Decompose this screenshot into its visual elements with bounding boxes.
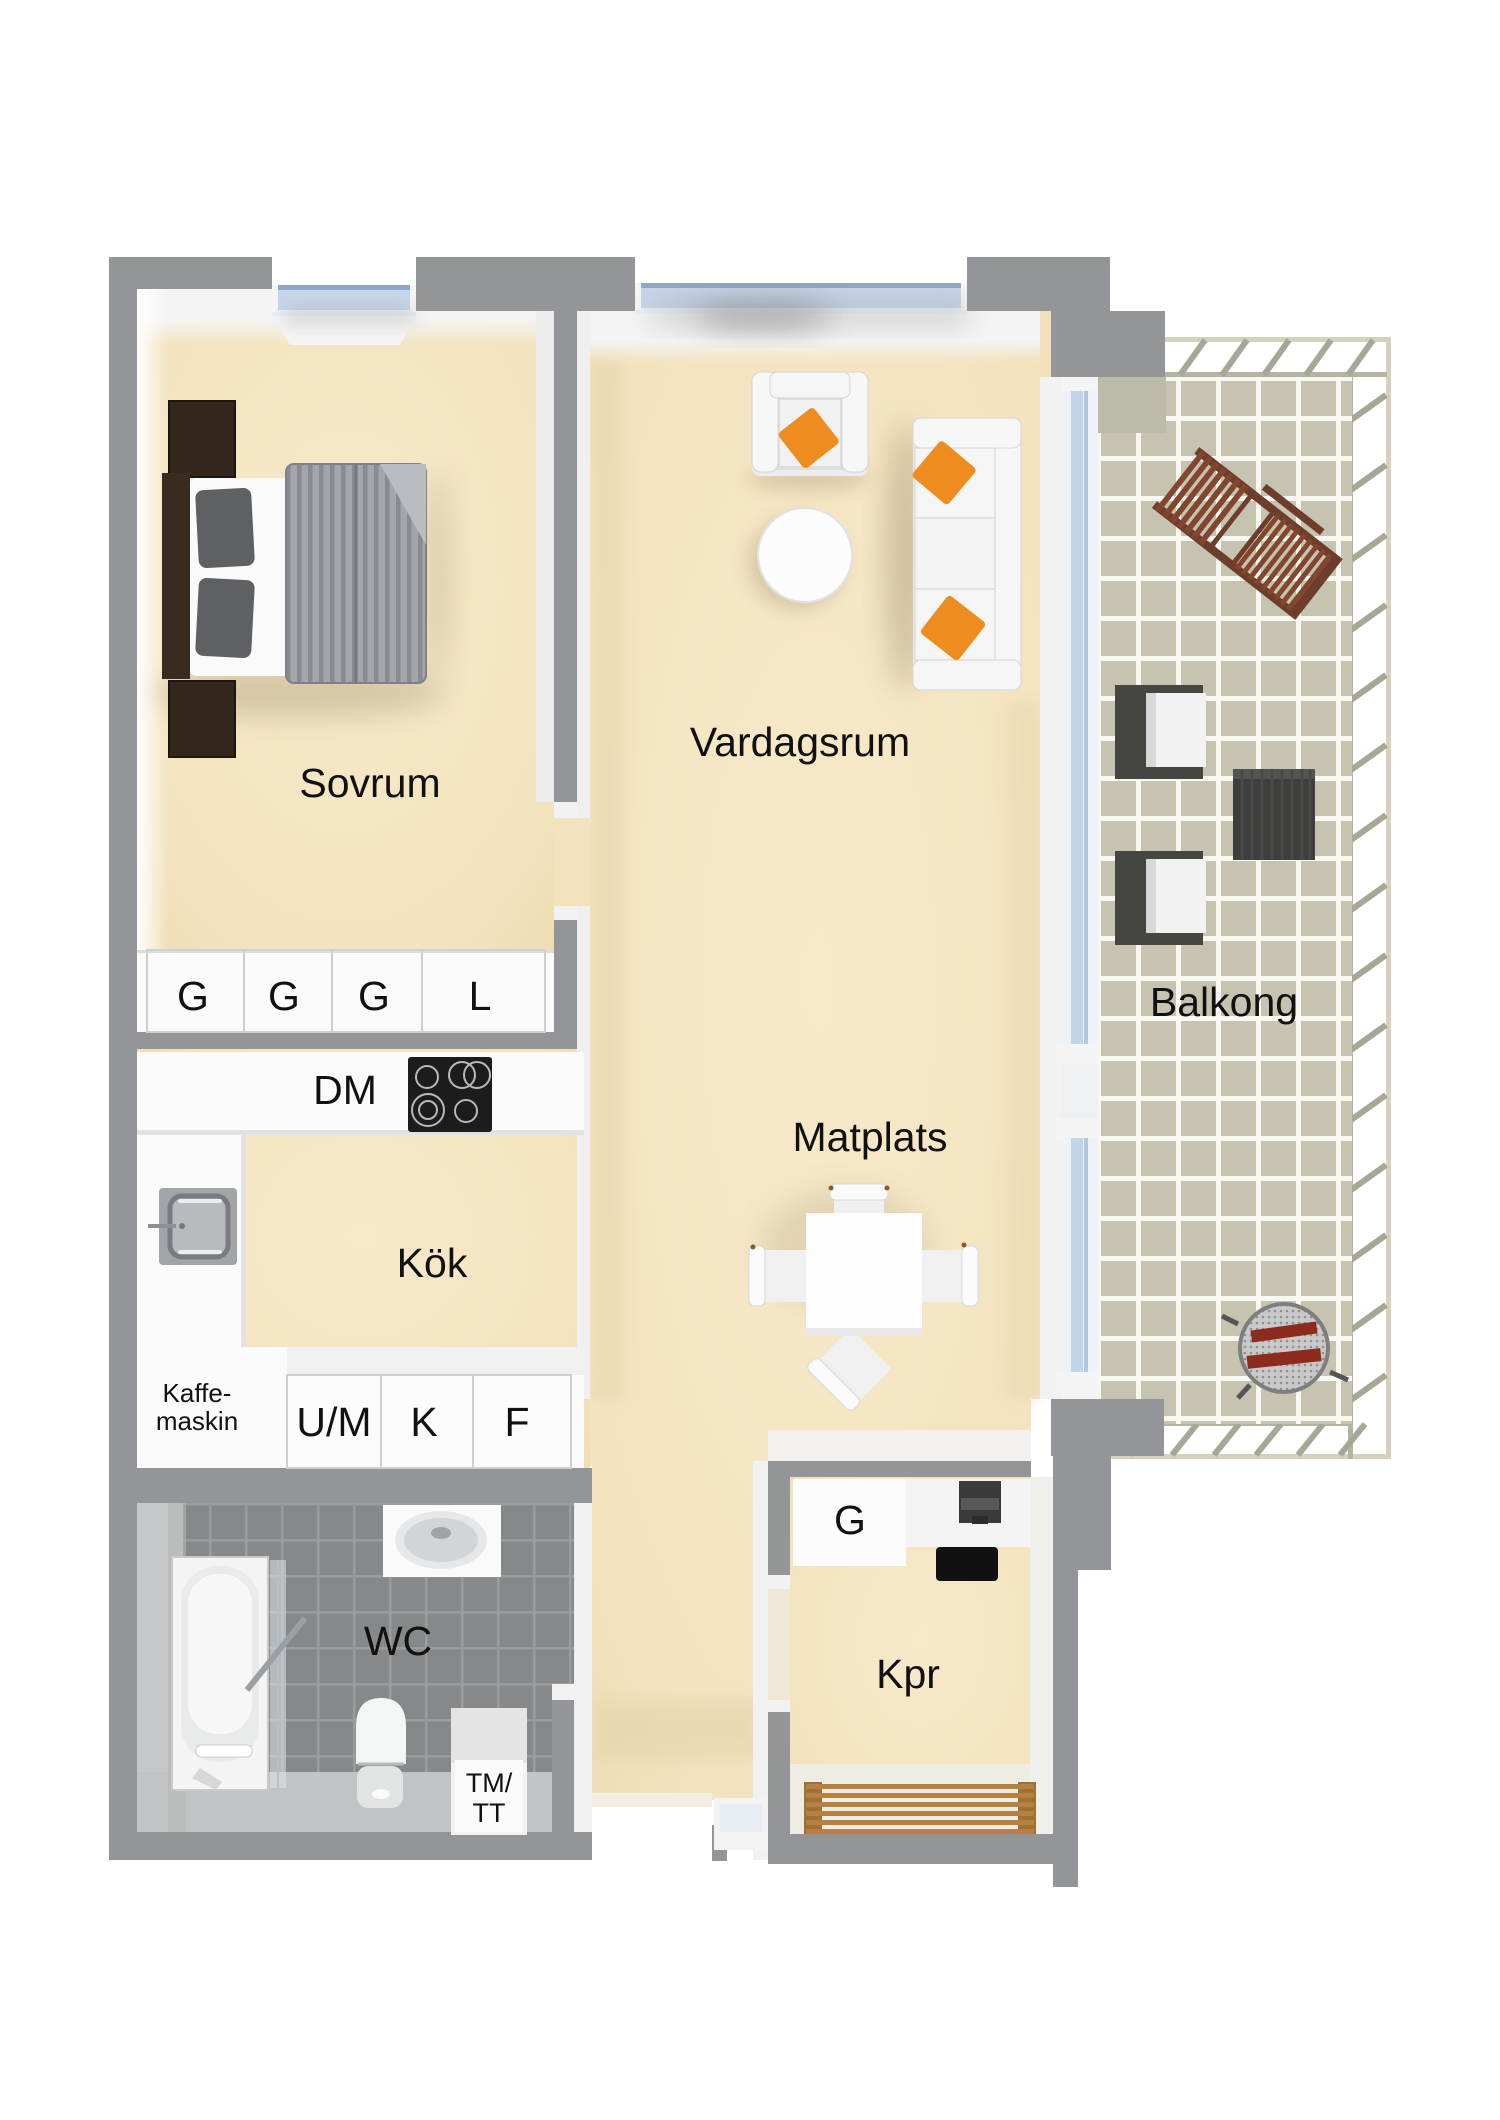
svg-text:L: L: [469, 973, 492, 1019]
svg-text:TM/: TM/: [466, 1768, 513, 1798]
svg-text:G: G: [177, 973, 209, 1019]
svg-text:U/M: U/M: [296, 1399, 371, 1445]
svg-text:DM: DM: [313, 1067, 377, 1113]
svg-text:Balkong: Balkong: [1150, 979, 1298, 1025]
svg-text:WC: WC: [364, 1618, 432, 1664]
svg-text:Sovrum: Sovrum: [299, 760, 440, 806]
svg-text:K: K: [410, 1399, 437, 1445]
svg-text:Kök: Kök: [397, 1240, 468, 1286]
svg-text:Matplats: Matplats: [793, 1114, 948, 1160]
svg-text:TT: TT: [473, 1798, 506, 1828]
svg-text:G: G: [268, 973, 300, 1019]
svg-text:Kpr: Kpr: [876, 1651, 940, 1697]
svg-text:Vardagsrum: Vardagsrum: [690, 719, 910, 765]
svg-text:Kaffe-: Kaffe-: [163, 1378, 232, 1408]
svg-text:F: F: [504, 1399, 529, 1445]
svg-text:G: G: [834, 1497, 866, 1543]
svg-text:G: G: [358, 973, 390, 1019]
svg-text:maskin: maskin: [156, 1406, 238, 1436]
